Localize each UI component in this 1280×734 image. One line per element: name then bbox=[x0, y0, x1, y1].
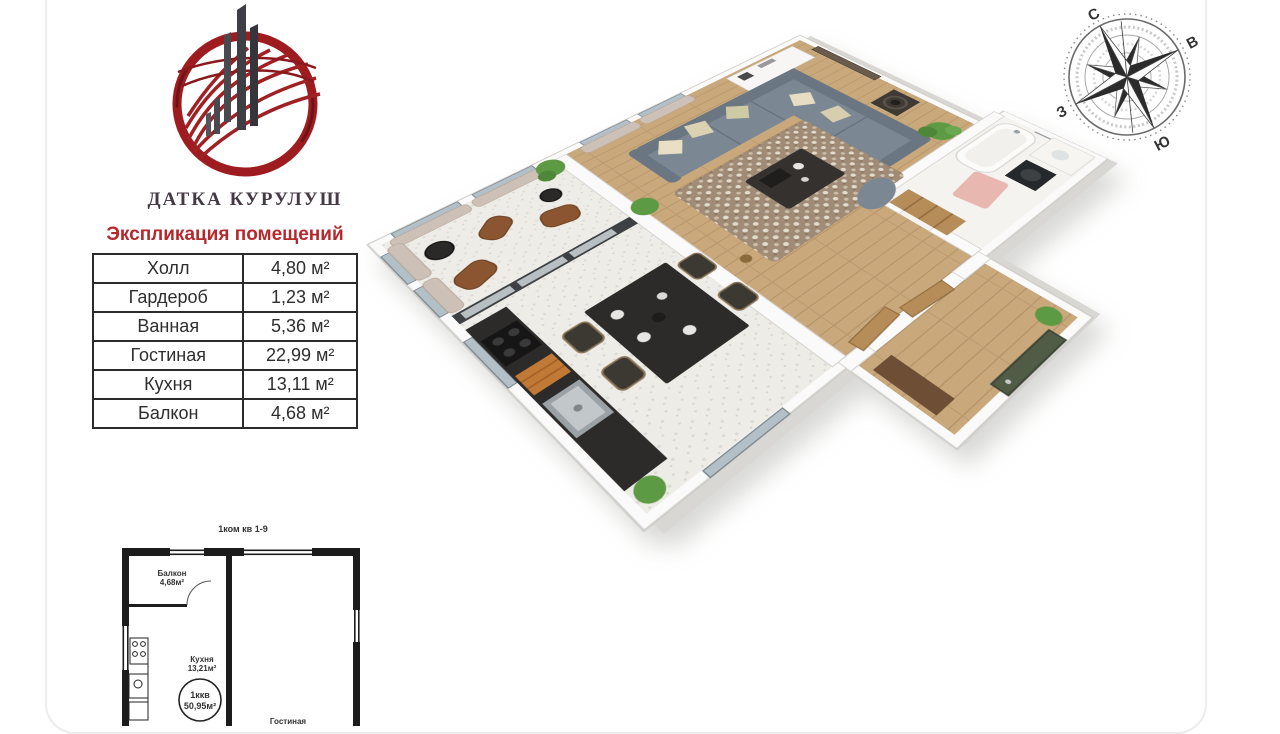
mini-plan-title: 1ком кв 1-9 bbox=[116, 524, 370, 534]
table-row: Балкон 4,68 м² bbox=[93, 399, 357, 428]
explication-table: Холл 4,80 м² Гардероб 1,23 м² Ванная 5,3… bbox=[92, 253, 358, 429]
compass-south-label: Ю bbox=[1152, 133, 1174, 155]
mini-kitchen-area: 13,21м² bbox=[188, 664, 217, 673]
room-name: Кухня bbox=[93, 370, 243, 399]
mini-total-circle bbox=[179, 679, 221, 721]
mini-balcony-label: Балкон bbox=[158, 569, 187, 578]
compass-west-label: З bbox=[1054, 102, 1070, 121]
room-area: 4,68 м² bbox=[243, 399, 357, 428]
compass-rose: С В Ю З bbox=[1048, 0, 1206, 156]
room-name: Балкон bbox=[93, 399, 243, 428]
mini-kitchen-label: Кухня bbox=[190, 655, 214, 664]
company-name: ДАТКА КУРУЛУШ bbox=[118, 189, 372, 211]
table-row: Гардероб 1,23 м² bbox=[93, 283, 357, 312]
table-row: Холл 4,80 м² bbox=[93, 254, 357, 283]
room-name: Гардероб bbox=[93, 283, 243, 312]
room-area: 1,23 м² bbox=[243, 283, 357, 312]
mini-apartment-type: 1ккв bbox=[190, 690, 210, 700]
table-row: Кухня 13,11 м² bbox=[93, 370, 357, 399]
compass-east-label: В bbox=[1184, 33, 1202, 53]
table-row: Ванная 5,36 м² bbox=[93, 312, 357, 341]
mini-door-arc bbox=[187, 581, 211, 605]
room-name: Ванная bbox=[93, 312, 243, 341]
room-area: 4,80 м² bbox=[243, 254, 357, 283]
table-row: Гостиная 22,99 м² bbox=[93, 341, 357, 370]
room-area: 22,99 м² bbox=[243, 341, 357, 370]
logo-emblem-icon bbox=[130, 2, 360, 182]
mini-floorplan: 1ком кв 1-9 Балкон 4,68м bbox=[116, 524, 370, 730]
mini-plan-drawing: Балкон 4,68м² Кухня 13,21м² 1ккв 50,95м²… bbox=[116, 534, 370, 726]
company-logo: ДАТКА КУРУЛУШ bbox=[118, 2, 372, 211]
explication-block: Экспликация помещений Холл 4,80 м² Гарде… bbox=[92, 224, 358, 429]
room-area: 5,36 м² bbox=[243, 312, 357, 341]
mini-kitchen-fixtures bbox=[129, 638, 148, 720]
mini-total-area: 50,95м² bbox=[184, 701, 216, 711]
explication-title: Экспликация помещений bbox=[92, 224, 358, 246]
mini-balcony-area: 4,68м² bbox=[160, 578, 184, 587]
room-name: Холл bbox=[93, 254, 243, 283]
room-area: 13,11 м² bbox=[243, 370, 357, 399]
compass-north-label: С bbox=[1085, 5, 1103, 25]
room-name: Гостиная bbox=[93, 341, 243, 370]
mini-living-label: Гостиная bbox=[270, 717, 306, 726]
